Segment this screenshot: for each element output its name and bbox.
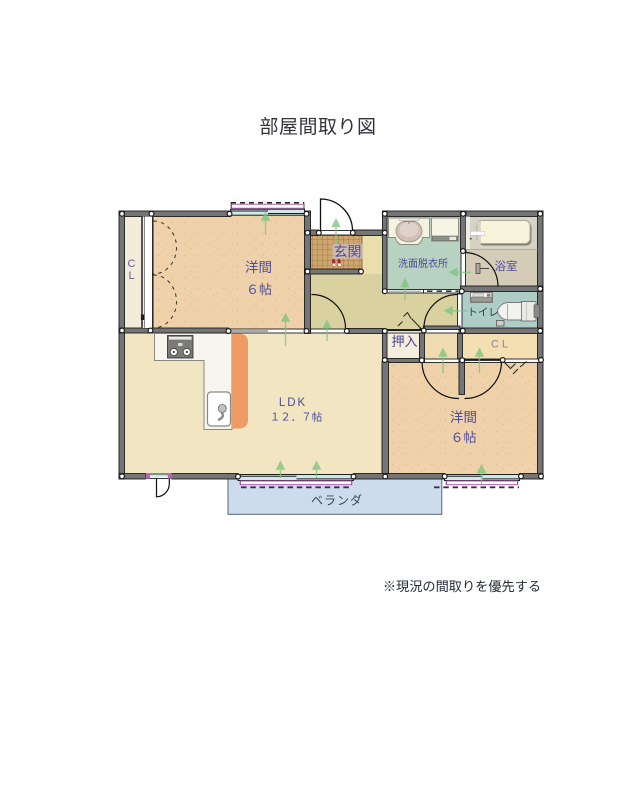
svg-text:※現況の間取りを優先する: ※現況の間取りを優先する (383, 579, 541, 594)
svg-text:洋間: 洋間 (450, 410, 477, 425)
svg-text:玄関: 玄関 (334, 244, 362, 260)
svg-text:CL: CL (491, 339, 511, 351)
svg-text:洗面脱衣所: 洗面脱衣所 (398, 257, 448, 270)
svg-text:ベランダ: ベランダ (311, 493, 363, 508)
svg-text:トイレ: トイレ (467, 307, 499, 319)
svg-text:６帖: ６帖 (246, 282, 272, 297)
svg-text:C: C (128, 258, 136, 270)
svg-text:LDK: LDK (279, 397, 307, 409)
svg-text:１２．７帖: １２．７帖 (270, 411, 323, 424)
svg-text:押入: 押入 (391, 334, 417, 349)
svg-text:部屋間取り図: 部屋間取り図 (259, 116, 376, 138)
svg-text:洋間: 洋間 (245, 260, 272, 275)
svg-text:６帖: ６帖 (450, 430, 476, 445)
svg-text:L: L (128, 270, 134, 282)
svg-text:浴室: 浴室 (495, 259, 518, 273)
